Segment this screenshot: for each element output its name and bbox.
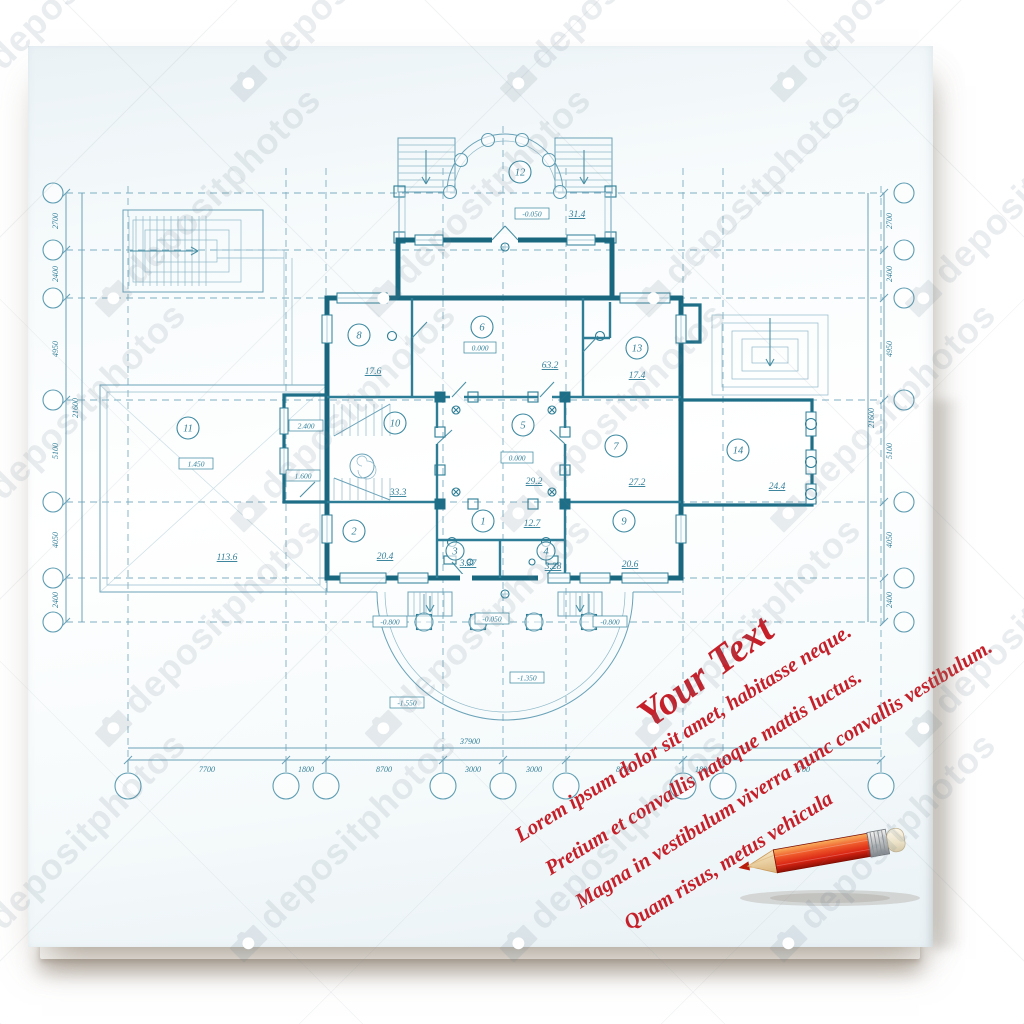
watermark-text: depositphotos [925,79,1024,293]
room-number: 1 [480,517,485,528]
room-number: 3 [451,547,457,558]
vestibule [398,226,612,298]
dim-label: 2700 [51,213,60,229]
dim-total-label: 21600 [71,398,80,418]
room-number: 14 [733,446,744,457]
dim-label: 3000 [464,765,481,774]
dim-label: 2400 [51,592,60,608]
left-dimension-column: 2700 2400 4950 5100 4050 2400 21600 [43,183,82,632]
room-area: 113.6 [217,553,238,563]
dim-label: 2700 [885,213,894,229]
dim-label: 3000 [525,765,542,774]
dim-label: 4050 [885,532,894,548]
room-number: 6 [479,323,485,334]
room-area: 63.2 [542,361,559,371]
room-area: 12.7 [524,519,542,529]
level-label: -0.800 [600,618,620,627]
room-labels: 12 31.4 8 17.6 6 63.2 13 17.4 11 113.6 1… [177,161,786,572]
room-area: 20.6 [622,560,639,570]
level-label: -0.050 [482,615,502,624]
room-area: 17.4 [629,371,646,381]
dim-label: 2400 [51,266,60,282]
interior-stair [334,404,390,500]
room-number: 10 [390,419,401,430]
dim-label: 5100 [51,443,60,459]
level-label: 2.400 [298,422,315,431]
room-number: 12 [515,168,526,179]
room-number: 5 [520,421,525,432]
room-area: 33.3 [389,488,407,498]
dim-label: 4950 [885,341,894,357]
room-area: 17.6 [365,367,382,377]
level-label: -1.550 [397,699,417,708]
dim-label: 1800 [298,765,314,774]
dim-total-label: 37900 [459,737,480,746]
level-label: -0.050 [522,210,542,219]
room-number: 11 [183,424,193,435]
room-area: 20.4 [377,552,394,562]
room-number: 4 [543,547,549,558]
room-area: 3.37 [459,559,478,569]
dim-label: 5100 [885,443,894,459]
room-number: 2 [351,527,357,538]
level-label: -1.350 [517,674,537,683]
room-area: 3.28 [544,562,562,572]
room-area: 27.2 [629,478,646,488]
room-area: 31.4 [568,210,586,220]
level-label: 1.600 [295,472,312,481]
pencil-wood [746,850,778,878]
room-area: 24.4 [769,482,786,492]
pencil-graphic [718,816,958,926]
columns [435,392,571,510]
level-label: 0.000 [509,454,526,463]
pencil-lead [738,861,750,872]
terrace-outline [100,385,327,592]
exterior-stair-top-left [123,210,292,385]
dim-label: 4050 [51,532,60,548]
paper-curl-shadow [933,400,963,948]
level-label: 1.450 [188,460,205,469]
room-number: 7 [613,442,619,453]
room-number: 8 [356,331,362,342]
dim-label: 2400 [885,266,894,282]
pencil-body [773,833,871,873]
dim-label: 8700 [376,765,392,774]
level-label: -0.800 [380,618,400,627]
stage: 2700 2400 4950 5100 4050 2400 21600 2700… [0,0,1024,1024]
level-label: 0.000 [472,344,489,353]
dim-label: 7700 [199,765,215,774]
level-labels: -0.050 0.000 0.000 2.400 1.600 1.450 -0.… [179,208,627,708]
room-number: 13 [632,344,643,355]
exterior-stair-right [712,315,828,395]
room-number: 9 [621,517,627,528]
room-area: 29.2 [526,477,543,487]
dim-label: 4950 [51,341,60,357]
dim-total-label: 21600 [867,408,876,428]
